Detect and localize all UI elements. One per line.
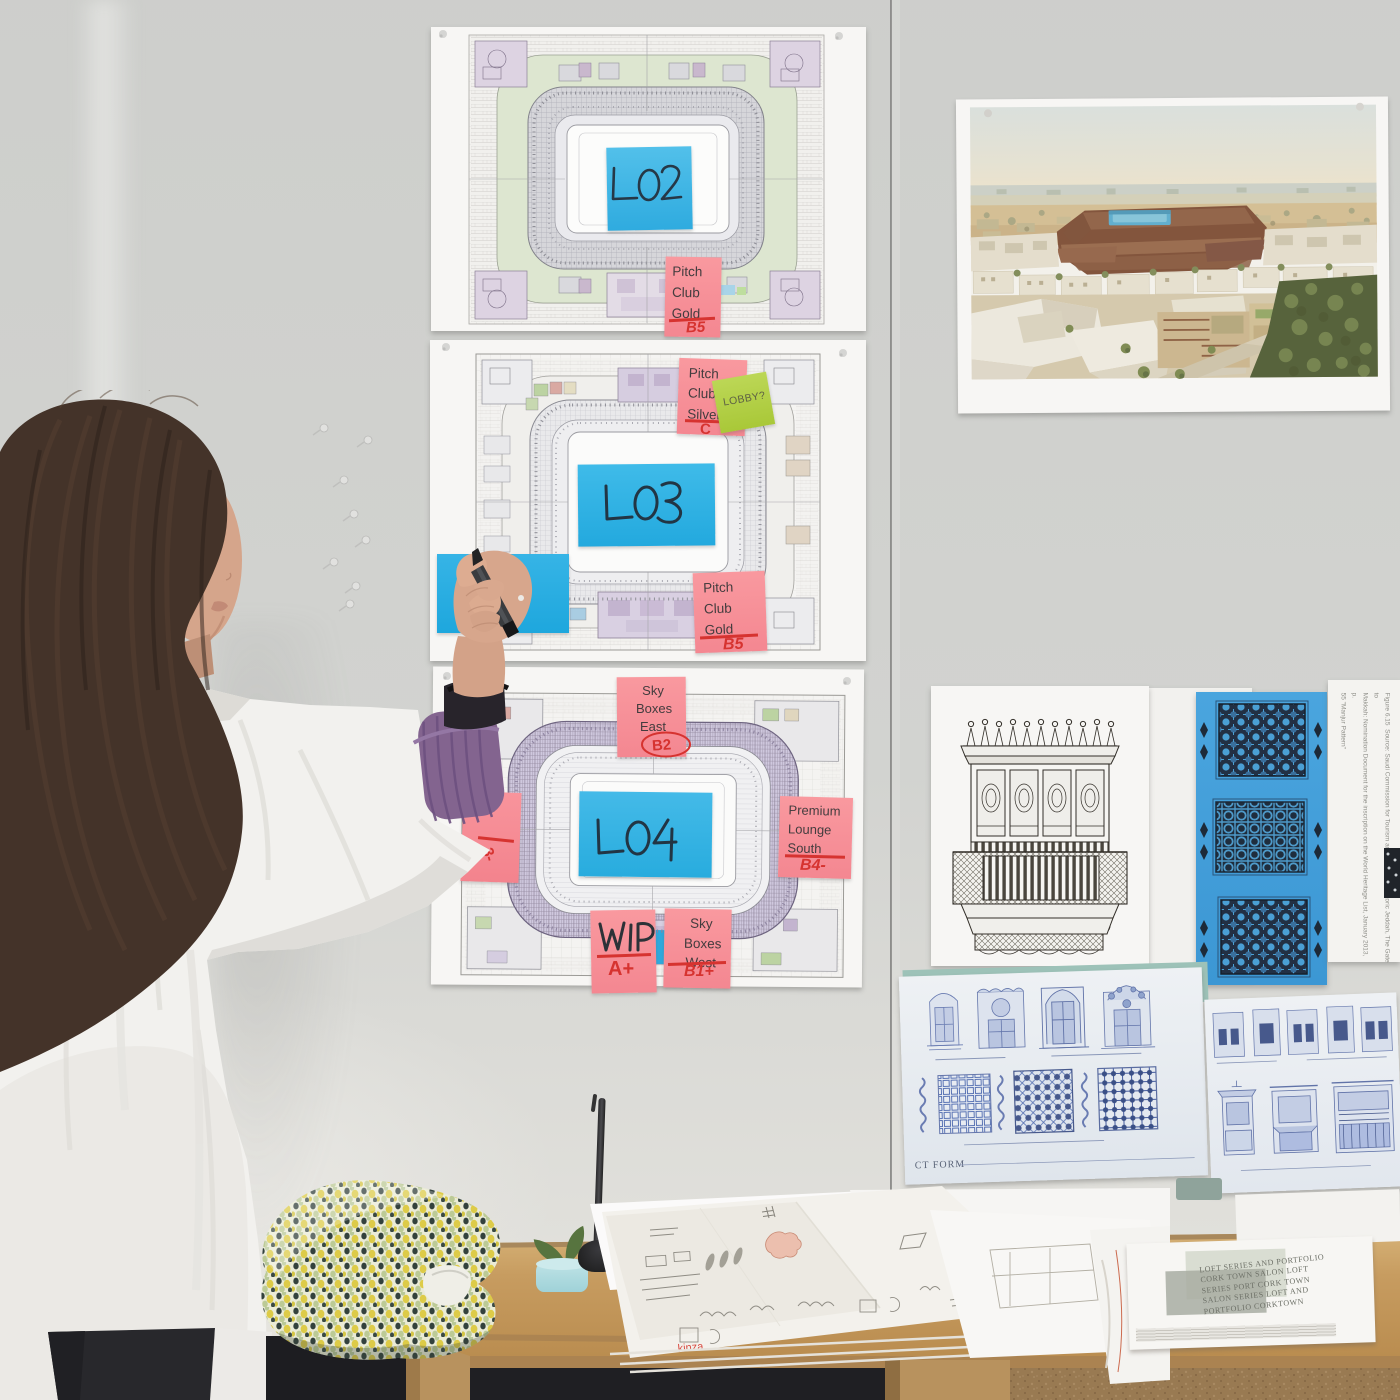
svg-text:kinza: kinza bbox=[677, 1341, 705, 1355]
